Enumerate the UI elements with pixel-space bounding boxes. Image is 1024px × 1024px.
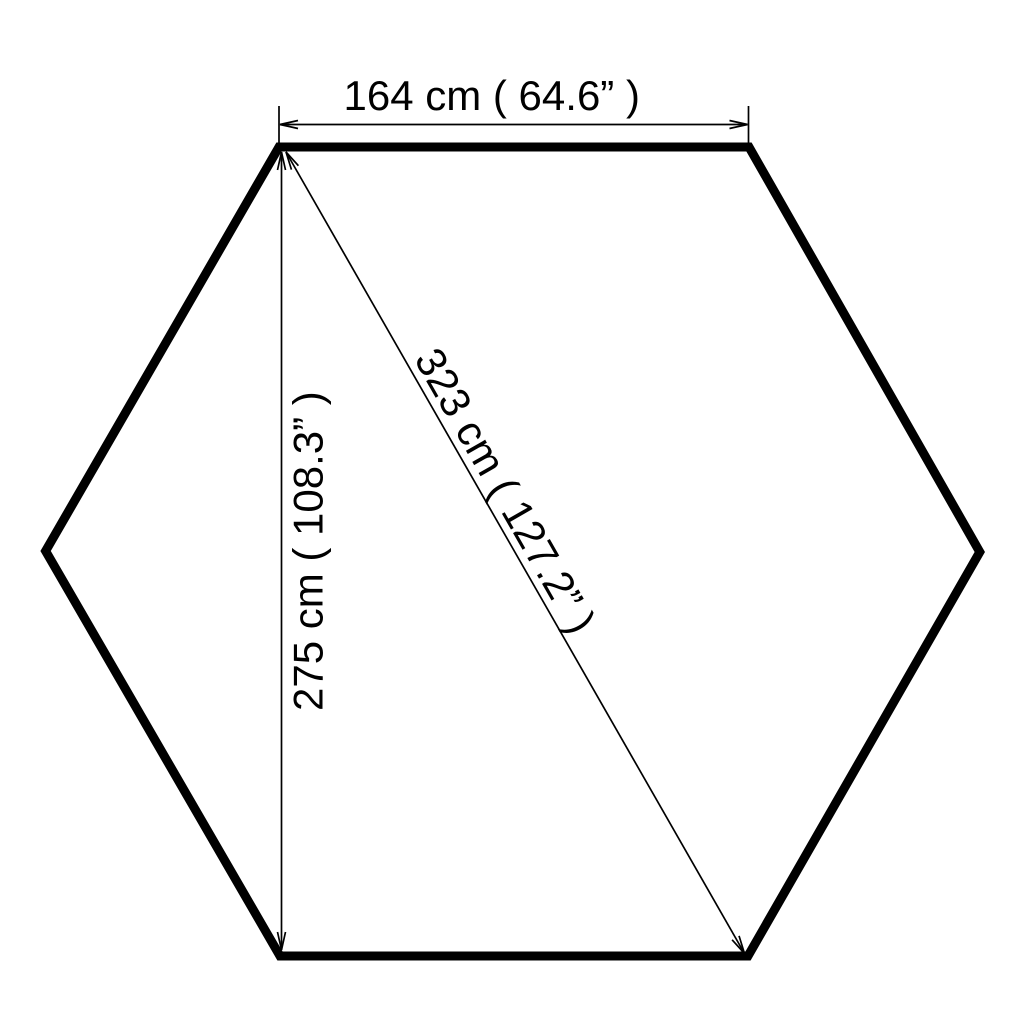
svg-text:275 cm ( 108.3” ): 275 cm ( 108.3” )	[285, 391, 332, 711]
svg-text:164 cm ( 64.6” ): 164 cm ( 64.6” )	[344, 72, 640, 119]
